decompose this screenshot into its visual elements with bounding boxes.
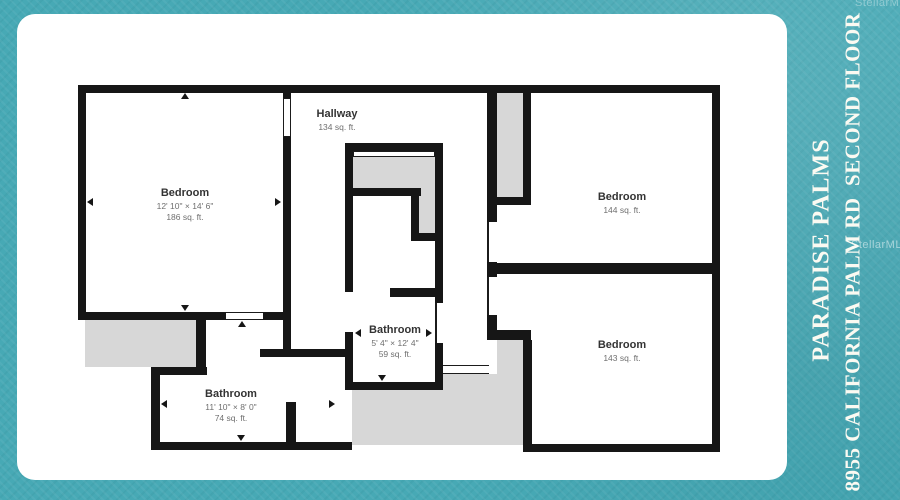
dimension-arrow — [238, 321, 246, 327]
room-dimensions: 5' 4" × 12' 4" — [369, 338, 421, 349]
room-label-bathroom-bottom: Bathroom 11' 10" × 8' 0" 74 sq. ft. — [205, 387, 257, 424]
room-name: Bedroom — [598, 190, 646, 205]
dimension-arrow — [87, 198, 93, 206]
wall — [78, 85, 86, 320]
wall — [353, 188, 421, 196]
dimension-arrow — [329, 400, 335, 408]
dimension-arrow — [275, 198, 281, 206]
dimension-arrow — [181, 93, 189, 99]
wall — [497, 263, 720, 274]
void-area — [497, 93, 523, 197]
mls-watermark: StellarMLS — [855, 0, 900, 9]
room-label-bathroom-center: Bathroom 5' 4" × 12' 4" 59 sq. ft. — [369, 323, 421, 360]
room-name: Bedroom — [598, 338, 646, 353]
door-opening — [226, 312, 263, 320]
wall — [151, 367, 160, 450]
dimension-arrow — [378, 375, 386, 381]
property-address-vertical: 8955 CALIFORNIA PALM RD SECOND FLOOR — [841, 13, 866, 492]
void-area — [497, 340, 523, 445]
stairs-area — [419, 157, 435, 233]
wall — [523, 444, 720, 452]
wall — [487, 330, 531, 340]
wall — [260, 349, 352, 357]
door-opening — [345, 292, 353, 332]
dimension-arrow — [161, 400, 167, 408]
room-label-bedroom-top-right: Bedroom 144 sq. ft. — [598, 190, 646, 216]
mls-watermark: StellarMLS — [851, 239, 900, 251]
wall — [523, 340, 532, 452]
wall — [390, 288, 443, 297]
wall — [345, 382, 443, 390]
wall — [345, 143, 353, 390]
wall — [712, 85, 720, 452]
door-opening — [487, 277, 497, 315]
room-name: Bathroom — [369, 323, 421, 338]
wall — [411, 233, 435, 241]
wall — [80, 85, 720, 93]
room-area: 59 sq. ft. — [369, 349, 421, 360]
door-opening — [435, 303, 443, 343]
screenshot-stage: Bedroom 12' 10" × 14' 6" 186 sq. ft. Hal… — [0, 0, 900, 500]
door-opening — [283, 98, 291, 137]
room-label-bedroom-left: Bedroom 12' 10" × 14' 6" 186 sq. ft. — [157, 186, 214, 223]
stair-edge-lines — [443, 365, 489, 374]
wall — [151, 442, 352, 450]
wall — [286, 402, 296, 450]
property-name-vertical: PARADISE PALMS — [809, 138, 836, 361]
wall — [435, 143, 443, 390]
room-label-hallway: Hallway 134 sq. ft. — [317, 107, 358, 133]
room-area: 186 sq. ft. — [157, 212, 214, 223]
dimension-arrow — [355, 329, 361, 337]
wall — [196, 318, 206, 375]
room-area: 143 sq. ft. — [598, 353, 646, 364]
room-area: 134 sq. ft. — [317, 122, 358, 133]
wall — [523, 93, 531, 205]
wall — [345, 143, 443, 151]
room-name: Bedroom — [157, 186, 214, 201]
dimension-arrow — [237, 435, 245, 441]
room-dimensions: 11' 10" × 8' 0" — [205, 402, 257, 413]
void-area — [443, 374, 497, 394]
room-name: Hallway — [317, 107, 358, 122]
room-area: 74 sq. ft. — [205, 413, 257, 424]
room-dimensions: 12' 10" × 14' 6" — [157, 201, 214, 212]
room-area: 144 sq. ft. — [598, 205, 646, 216]
door-opening — [487, 222, 497, 262]
void-area — [85, 320, 196, 367]
door-opening — [353, 151, 435, 157]
dimension-arrow — [378, 189, 386, 195]
dimension-arrow — [181, 305, 189, 311]
room-name: Bathroom — [205, 387, 257, 402]
dimension-arrow — [426, 329, 432, 337]
room-label-bedroom-bottom-right: Bedroom 143 sq. ft. — [598, 338, 646, 364]
